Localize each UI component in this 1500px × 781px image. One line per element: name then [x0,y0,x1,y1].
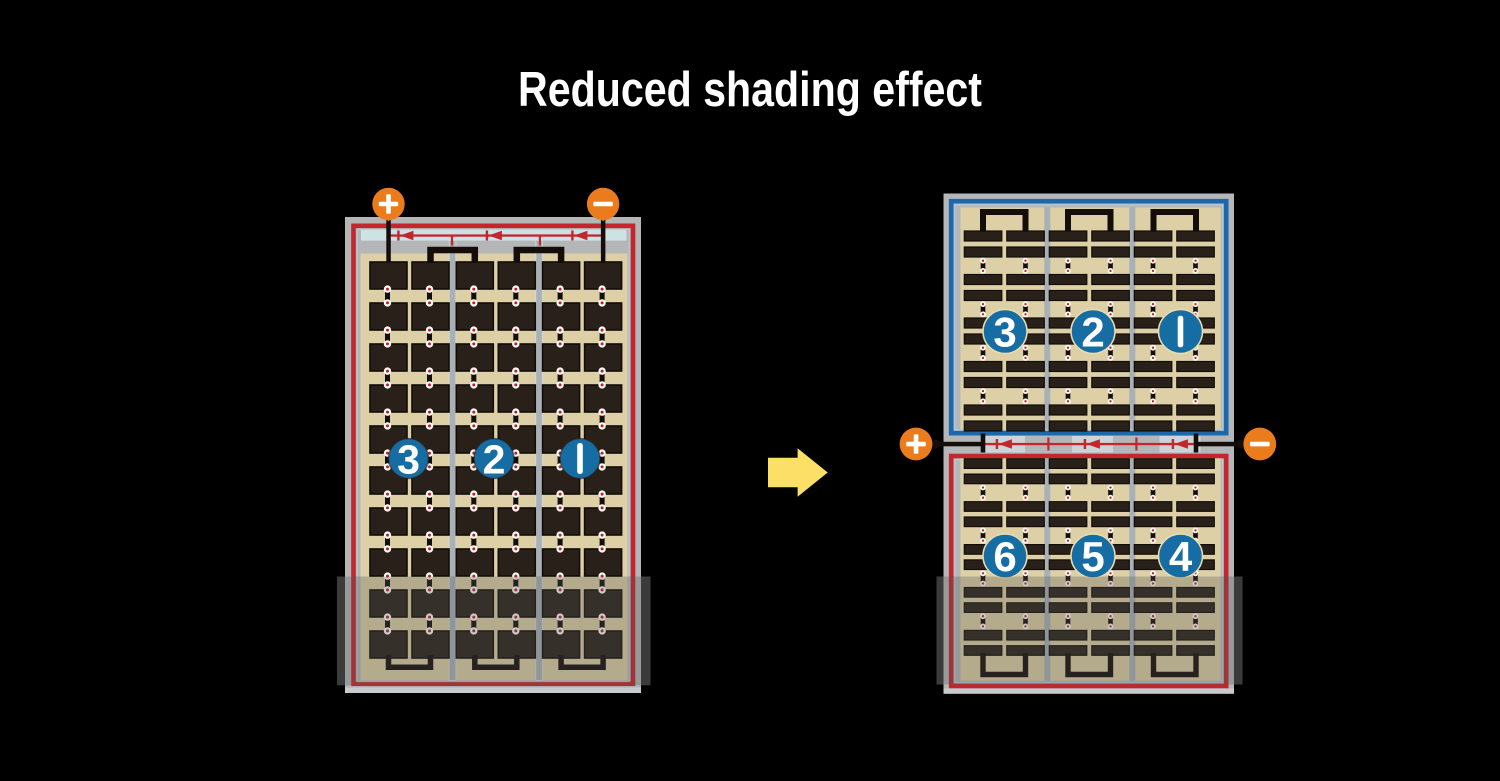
svg-text:3: 3 [397,436,420,482]
svg-text:3: 3 [993,309,1016,356]
svg-text:5: 5 [1081,533,1104,580]
svg-text:2: 2 [483,436,506,482]
svg-text:4: 4 [1169,533,1193,580]
svg-text:Reduced shading effect: Reduced shading effect [518,63,982,117]
svg-text:6: 6 [993,533,1016,580]
svg-text:2: 2 [1081,309,1104,356]
